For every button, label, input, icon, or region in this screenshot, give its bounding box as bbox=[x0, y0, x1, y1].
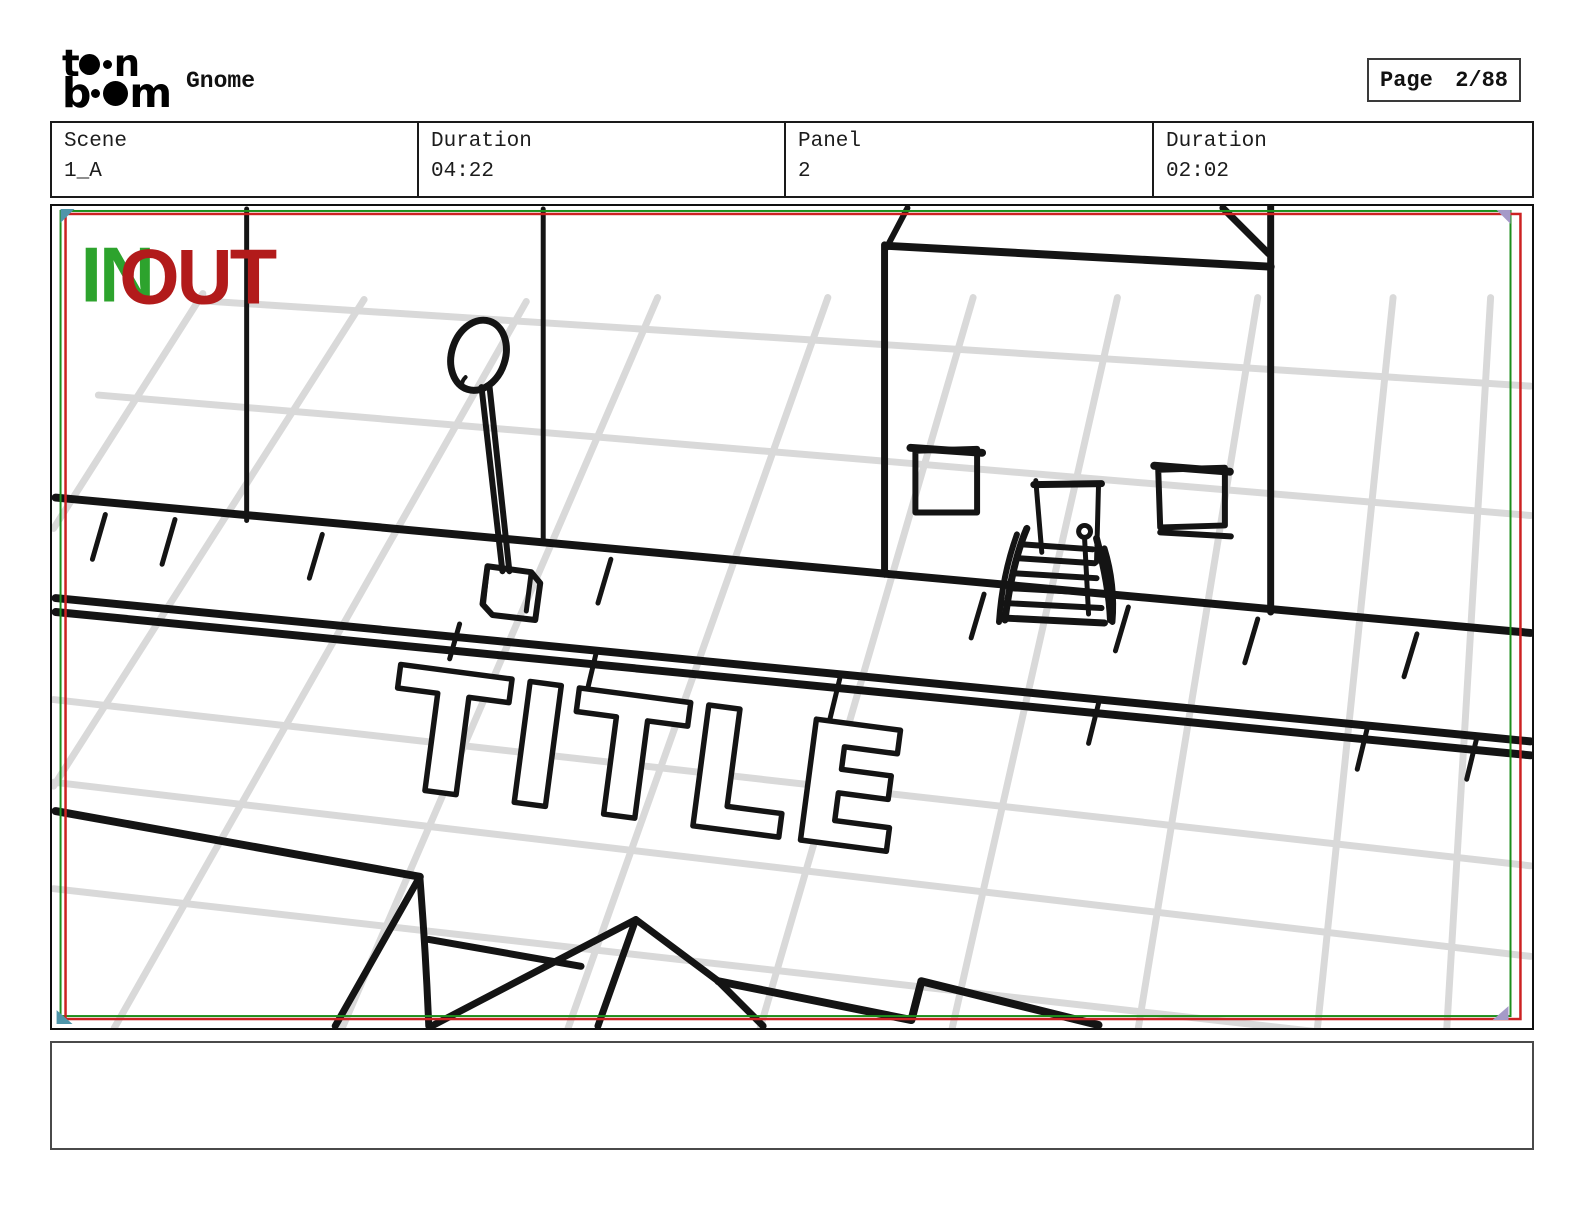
logo-dot-icon bbox=[103, 60, 112, 69]
scene-label: Scene bbox=[64, 130, 405, 153]
storyboard-panel: TITLE IN OUT bbox=[50, 204, 1534, 1030]
scene-value: 1_A bbox=[64, 160, 405, 183]
camera-marker-bottom-right bbox=[1493, 1006, 1509, 1020]
logo-char: m bbox=[129, 78, 170, 110]
camera-marker-top-left bbox=[61, 209, 75, 223]
duration-label: Duration bbox=[1166, 130, 1520, 153]
scene-duration-cell: Duration 04:22 bbox=[417, 123, 784, 196]
toonboom-logo: t n b m bbox=[62, 50, 170, 108]
logo-dot-icon bbox=[91, 89, 100, 98]
page-number-box: Page 2/88 bbox=[1367, 58, 1521, 102]
stairs-sketch bbox=[999, 528, 1113, 623]
duration-label: Duration bbox=[431, 130, 772, 153]
camera-marker-top-right bbox=[1497, 210, 1511, 224]
duration-value: 02:02 bbox=[1166, 160, 1520, 183]
info-bar: Scene 1_A Duration 04:22 Panel 2 Duratio… bbox=[50, 121, 1534, 198]
panel-value: 2 bbox=[798, 160, 1140, 183]
scene-cell: Scene 1_A bbox=[52, 123, 417, 196]
page-label: Page bbox=[1380, 68, 1433, 93]
perspective-grid bbox=[54, 294, 1531, 1028]
project-title: Gnome bbox=[186, 68, 255, 94]
panel-duration-cell: Duration 02:02 bbox=[1152, 123, 1532, 196]
panel-label: Panel bbox=[798, 130, 1140, 153]
storyboard-page: t n b m Gnome Page 2/88 Scene 1_A Durati… bbox=[0, 0, 1584, 1224]
page-number: 2/88 bbox=[1455, 68, 1508, 93]
camera-out-label: OUT bbox=[119, 235, 276, 321]
logo-dot-icon bbox=[103, 81, 128, 106]
panel-drawing: TITLE IN OUT bbox=[52, 206, 1532, 1028]
panel-cell: Panel 2 bbox=[784, 123, 1152, 196]
logo-line-2: b m bbox=[62, 79, 170, 108]
logo-char: b bbox=[62, 78, 89, 110]
caption-box bbox=[50, 1041, 1534, 1150]
duration-value: 04:22 bbox=[431, 160, 772, 183]
